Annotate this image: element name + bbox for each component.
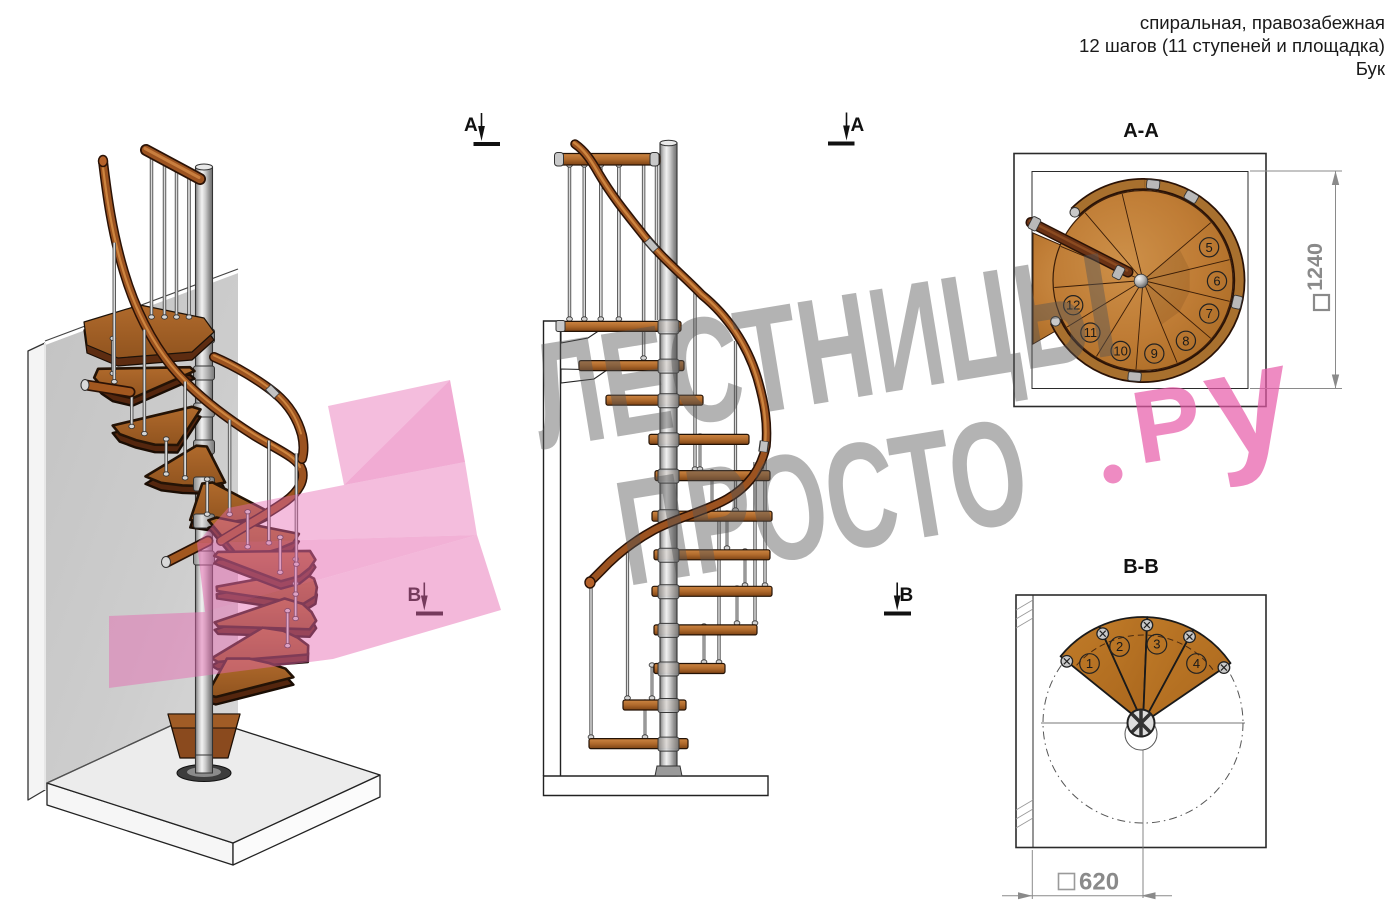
svg-text:9: 9 bbox=[1151, 346, 1158, 361]
svg-text:620: 620 bbox=[1079, 869, 1119, 896]
svg-text:12 шагов (11 ступеней и площад: 12 шагов (11 ступеней и площадка) bbox=[1079, 35, 1385, 56]
svg-text:A: A bbox=[851, 115, 865, 136]
svg-text:Бук: Бук bbox=[1356, 58, 1386, 79]
svg-text:7: 7 bbox=[1206, 306, 1213, 321]
svg-text:8: 8 bbox=[1182, 333, 1189, 348]
svg-text:6: 6 bbox=[1213, 274, 1220, 289]
svg-text:1240: 1240 bbox=[1303, 243, 1327, 291]
svg-text:спиральная, правозабежная: спиральная, правозабежная bbox=[1140, 12, 1385, 33]
svg-text:4: 4 bbox=[1193, 656, 1200, 671]
svg-text:2: 2 bbox=[1116, 639, 1123, 654]
svg-text:3: 3 bbox=[1153, 637, 1160, 652]
svg-text:В: В bbox=[900, 585, 914, 606]
svg-text:1: 1 bbox=[1086, 656, 1093, 671]
svg-text:В-В: В-В bbox=[1123, 556, 1159, 578]
svg-text:А-А: А-А bbox=[1123, 120, 1159, 142]
svg-text:A: A bbox=[464, 115, 478, 136]
svg-text:5: 5 bbox=[1205, 240, 1212, 255]
